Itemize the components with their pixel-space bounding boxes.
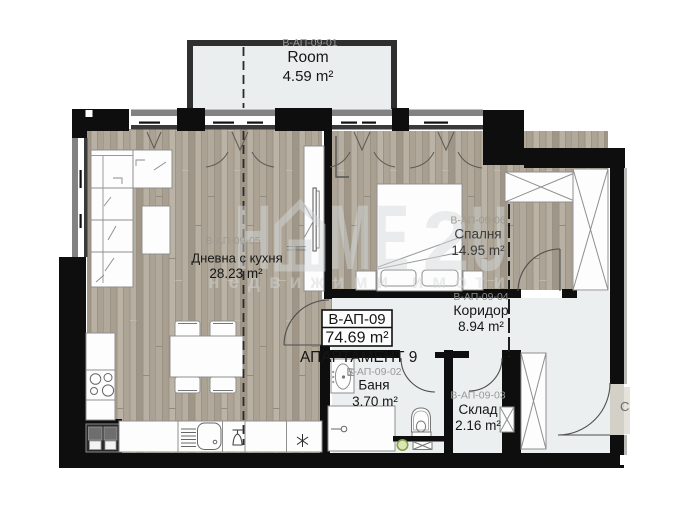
svg-text:В-АП-09-06: В-АП-09-06 [450,215,505,227]
svg-text:Room: Room [287,49,328,66]
svg-text:В-АП-09-02: В-АП-09-02 [346,366,401,378]
svg-text:В-АП-09: В-АП-09 [328,311,385,328]
svg-text:8.94 m²: 8.94 m² [458,319,504,334]
svg-text:АПАРТАМЕНТ 9: АПАРТАМЕНТ 9 [300,349,417,366]
svg-text:2.16 m²: 2.16 m² [455,418,501,433]
svg-text:Коридор: Коридор [453,302,509,318]
svg-text:74.69 m²: 74.69 m² [325,330,389,347]
svg-text:В-АП-09-01: В-АП-09-01 [282,37,337,49]
svg-text:Склад: Склад [458,402,497,417]
svg-text:В-АП-09-05: В-АП-09-05 [205,235,260,247]
svg-text:3.70 m²: 3.70 m² [352,394,398,409]
svg-text:Баня: Баня [358,378,389,393]
svg-text:Спалня: Спалня [454,227,501,242]
svg-text:С: С [620,399,629,414]
svg-text:28.23 m²: 28.23 m² [209,266,263,281]
svg-text:4.59 m²: 4.59 m² [283,68,334,85]
svg-text:Дневна с кухня: Дневна с кухня [191,251,282,266]
svg-text:14.95 m²: 14.95 m² [451,243,505,258]
svg-text:В-АП-09-03: В-АП-09-03 [450,390,505,402]
